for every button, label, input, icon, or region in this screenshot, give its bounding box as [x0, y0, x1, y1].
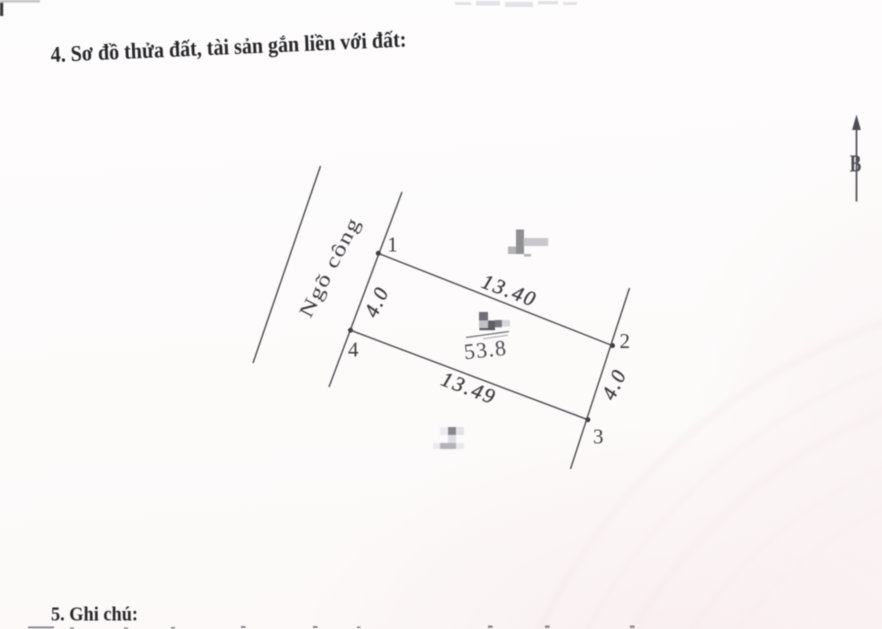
svg-text:13.49: 13.49	[438, 367, 500, 410]
svg-text:4. Sơ đồ thửa đất, tài sản gắn: 4. Sơ đồ thửa đất, tài sản gắn liền với …	[50, 26, 407, 67]
svg-text:Ngõ công: Ngõ công	[295, 214, 365, 322]
svg-text:3: 3	[593, 425, 604, 449]
svg-text:5. Ghi chú:: 5. Ghi chú:	[51, 604, 138, 626]
svg-text:1: 1	[387, 233, 398, 257]
svg-text:4.0: 4.0	[598, 365, 631, 403]
svg-text:2: 2	[619, 329, 630, 353]
svg-text:B: B	[850, 150, 862, 178]
svg-text:53.8: 53.8	[463, 335, 509, 364]
svg-text:4: 4	[348, 338, 359, 362]
